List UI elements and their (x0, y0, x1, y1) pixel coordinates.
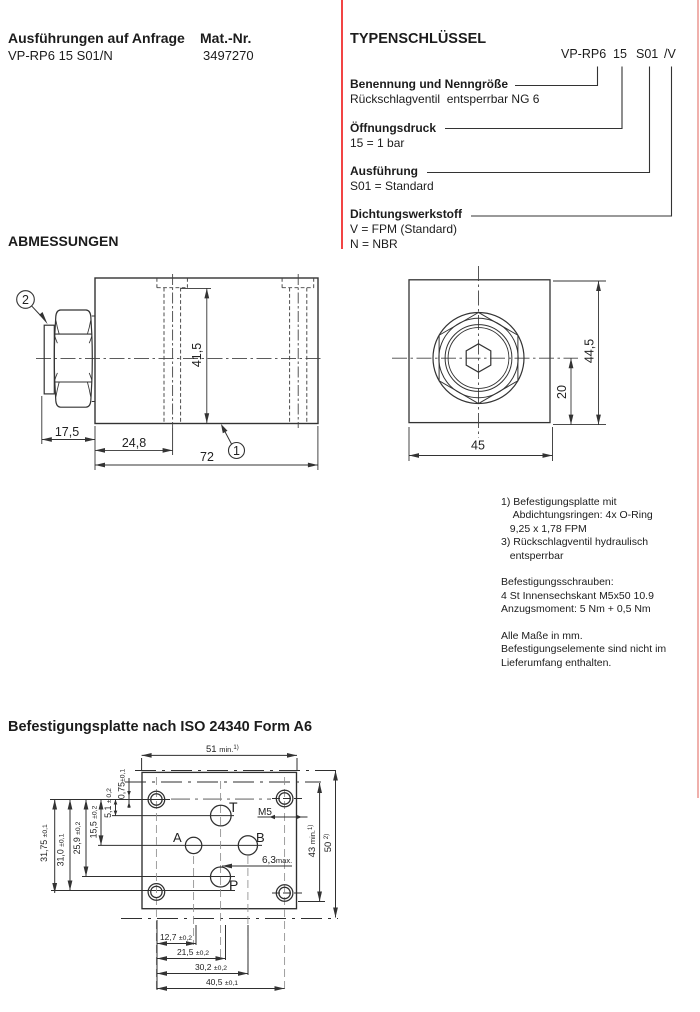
svg-text:12,7 ±0,2: 12,7 ±0,2 (160, 932, 192, 942)
svg-text:M5: M5 (258, 807, 272, 818)
svg-text:20: 20 (555, 385, 569, 399)
svg-text:1: 1 (233, 444, 240, 458)
svg-text:31,0 ±0,1: 31,0 ±0,1 (56, 833, 66, 866)
svg-text:15,5 ±0,2: 15,5 ±0,2 (89, 805, 99, 838)
svg-text:50 2): 50 2) (323, 834, 334, 853)
svg-text:25,9 ±0,2: 25,9 ±0,2 (72, 821, 82, 854)
svg-text:24,8: 24,8 (122, 436, 146, 450)
svg-text:40,5 ±0,1: 40,5 ±0,1 (206, 977, 238, 987)
svg-text:45: 45 (471, 439, 485, 453)
svg-text:21,5 ±0,2: 21,5 ±0,2 (177, 947, 209, 957)
svg-text:30,2 ±0,2: 30,2 ±0,2 (195, 962, 227, 972)
svg-text:P: P (229, 877, 238, 893)
svg-text:0,75±0,1: 0,75±0,1 (117, 769, 127, 800)
svg-text:43 min.1): 43 min.1) (307, 825, 318, 858)
svg-text:6,3max.: 6,3max. (262, 855, 292, 866)
svg-text:A: A (173, 830, 182, 845)
svg-text:31,75 ±0,1: 31,75 ±0,1 (39, 824, 49, 862)
svg-text:B: B (256, 830, 265, 845)
svg-text:2: 2 (22, 293, 29, 307)
svg-text:5,1 ± 0,2: 5,1 ± 0,2 (103, 788, 113, 818)
svg-text:T: T (229, 799, 238, 815)
svg-text:72: 72 (200, 450, 214, 464)
svg-text:17,5: 17,5 (55, 425, 79, 439)
svg-text:41,5: 41,5 (190, 343, 204, 367)
svg-text:44,5: 44,5 (583, 339, 597, 363)
svg-text:51 min.1): 51 min.1) (206, 744, 239, 755)
